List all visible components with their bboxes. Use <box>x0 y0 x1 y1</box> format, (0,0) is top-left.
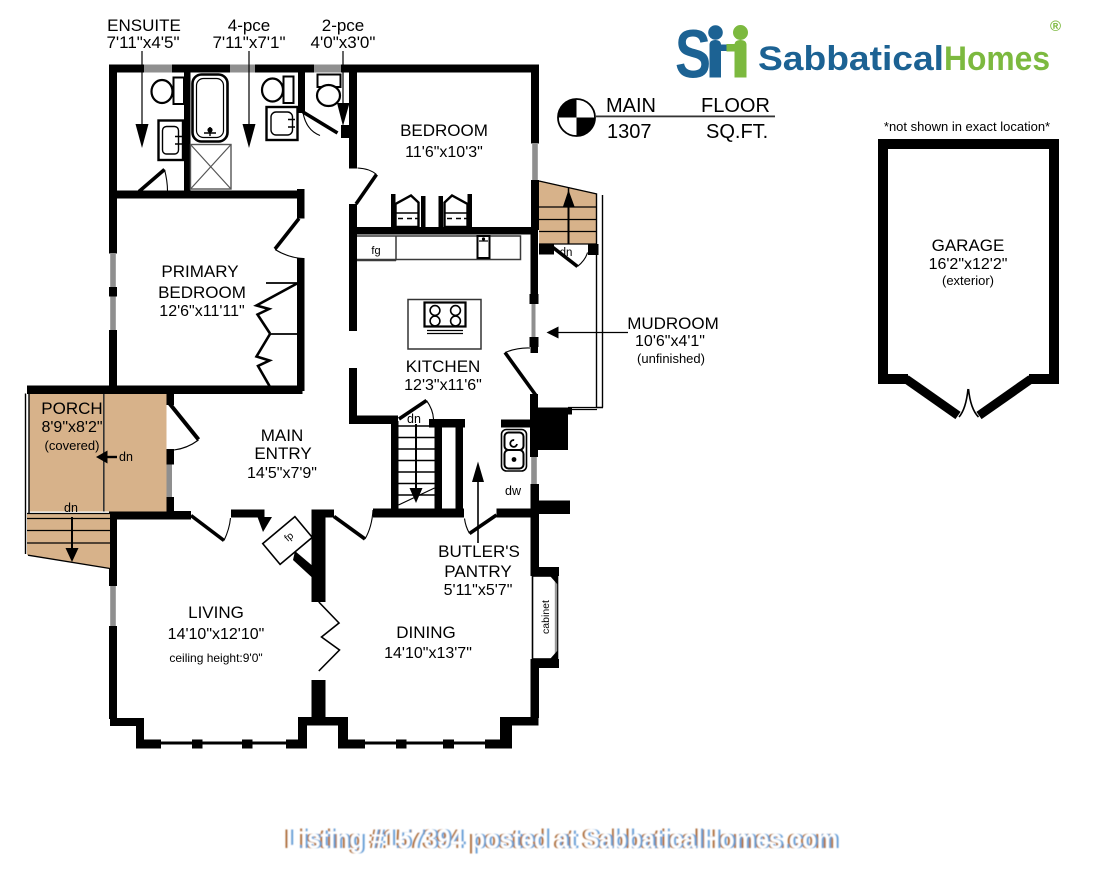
svg-text:7'11"x7'1": 7'11"x7'1" <box>212 33 285 52</box>
svg-text:5'11"x5'7": 5'11"x5'7" <box>444 582 513 599</box>
svg-text:dn: dn <box>119 450 133 464</box>
svg-text:12'6"x11'11": 12'6"x11'11" <box>159 303 244 320</box>
svg-text:S: S <box>675 16 711 93</box>
svg-text:Listing #157394 posted at Sabb: Listing #157394 posted at SabbaticalHome… <box>286 824 838 854</box>
svg-text:ENTRY: ENTRY <box>254 444 311 463</box>
svg-text:*not shown in exact location*: *not shown in exact location* <box>884 119 1050 134</box>
svg-text:cabinet: cabinet <box>540 600 552 634</box>
svg-text:BEDROOM: BEDROOM <box>400 121 488 140</box>
svg-text:FLOOR: FLOOR <box>701 95 770 117</box>
svg-text:(covered): (covered) <box>45 438 100 453</box>
svg-text:dn: dn <box>64 501 78 515</box>
svg-text:7'11"x4'5": 7'11"x4'5" <box>106 33 179 52</box>
svg-text:fg: fg <box>371 245 380 257</box>
svg-text:ceiling height:9'0": ceiling height:9'0" <box>169 651 262 665</box>
svg-text:GARAGE: GARAGE <box>932 236 1005 255</box>
svg-text:dw: dw <box>505 484 522 498</box>
svg-text:1307: 1307 <box>607 121 652 143</box>
svg-text:SQ.FT.: SQ.FT. <box>706 121 768 143</box>
svg-text:14'10"x12'10": 14'10"x12'10" <box>168 626 265 643</box>
svg-text:4'0"x3'0": 4'0"x3'0" <box>311 33 376 52</box>
svg-text:MUDROOM: MUDROOM <box>627 314 719 333</box>
svg-text:DINING: DINING <box>396 623 456 642</box>
svg-text:®: ® <box>1050 18 1061 35</box>
svg-text:10'6"x4'1": 10'6"x4'1" <box>635 333 705 350</box>
svg-text:14'10"x13'7": 14'10"x13'7" <box>384 645 472 662</box>
svg-text:BEDROOM: BEDROOM <box>158 283 246 302</box>
svg-text:8'9"x8'2": 8'9"x8'2" <box>41 419 102 436</box>
svg-text:14'5"x7'9": 14'5"x7'9" <box>247 465 317 482</box>
svg-text:dn: dn <box>407 412 421 426</box>
svg-text:(exterior): (exterior) <box>942 273 994 288</box>
svg-text:MAIN: MAIN <box>261 426 304 445</box>
svg-text:PRIMARY: PRIMARY <box>161 262 238 281</box>
svg-text:dn: dn <box>560 247 573 259</box>
svg-text:12'3"x11'6": 12'3"x11'6" <box>404 377 482 394</box>
svg-text:KITCHEN: KITCHEN <box>406 357 481 376</box>
svg-text:(unfinished): (unfinished) <box>637 351 705 366</box>
svg-text:PORCH: PORCH <box>41 399 102 418</box>
svg-text:16'2"x12'2": 16'2"x12'2" <box>929 256 1008 273</box>
svg-text:MAIN: MAIN <box>606 95 656 117</box>
svg-text:Homes: Homes <box>944 40 1050 78</box>
svg-text:Sabbatical: Sabbatical <box>758 40 944 78</box>
svg-text:LIVING: LIVING <box>188 603 244 622</box>
svg-text:11'6"x10'3": 11'6"x10'3" <box>405 144 483 161</box>
svg-text:PANTRY: PANTRY <box>444 562 511 581</box>
svg-text:BUTLER'S: BUTLER'S <box>438 542 520 561</box>
